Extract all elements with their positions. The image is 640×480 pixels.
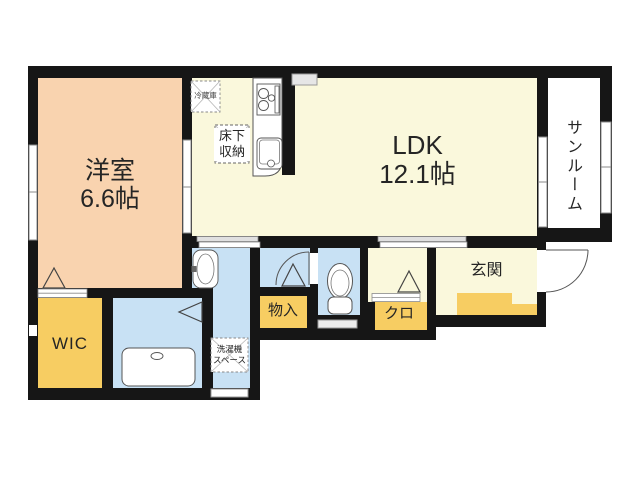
western-room-label: 洋室 6.6帖 — [38, 157, 182, 213]
wic-label: WIC — [38, 334, 102, 353]
storage-label: 物入 — [258, 303, 308, 320]
sliding-door-wic — [38, 289, 87, 298]
window-toilet-bottom — [318, 320, 357, 328]
floorplan-drawing — [0, 0, 640, 480]
ldk-size: 12.1帖 — [300, 160, 535, 189]
ldk-label: LDK 12.1帖 — [300, 131, 535, 189]
underfloor-storage-label: 床下 収納 — [214, 128, 250, 161]
washbasin-icon — [192, 250, 219, 288]
western-room-size: 6.6帖 — [38, 185, 182, 213]
entrance-door-arc — [546, 250, 588, 292]
refrigerator-label: 冷蔵庫 — [189, 92, 222, 100]
sliding-door-closet — [372, 294, 420, 302]
stove-icon — [257, 84, 280, 115]
bathtub-icon — [122, 348, 195, 386]
washer-space-label: 洗濯機 スペース — [207, 344, 252, 366]
entrance-step-large — [457, 293, 512, 315]
sunroom-label: サンルーム — [564, 100, 580, 232]
sliding-door-washroom — [197, 237, 260, 248]
closet-label: クロ — [371, 306, 427, 323]
window-sunroom-east — [601, 122, 611, 213]
entrance-step-small — [512, 304, 537, 315]
window-west-wall — [29, 145, 37, 240]
wall-notch — [29, 325, 37, 336]
sliding-door-entrance-hall — [378, 237, 467, 248]
door-western-ldk — [183, 140, 191, 233]
kitchen-sink-icon — [257, 138, 282, 169]
window-ldk-sunroom — [539, 137, 548, 227]
entrance-label: 玄関 — [436, 262, 537, 280]
window-kitchen-top — [292, 74, 317, 85]
western-room-name: 洋室 — [38, 157, 182, 185]
window-washer-bottom — [211, 389, 248, 397]
room-floors — [38, 78, 600, 388]
floorplan: 洋室 6.6帖 LDK 12.1帖 サンルーム 玄関 WIC 物入 クロ 床下 … — [0, 0, 640, 480]
toilet-icon — [328, 264, 353, 315]
ldk-name: LDK — [300, 131, 535, 160]
